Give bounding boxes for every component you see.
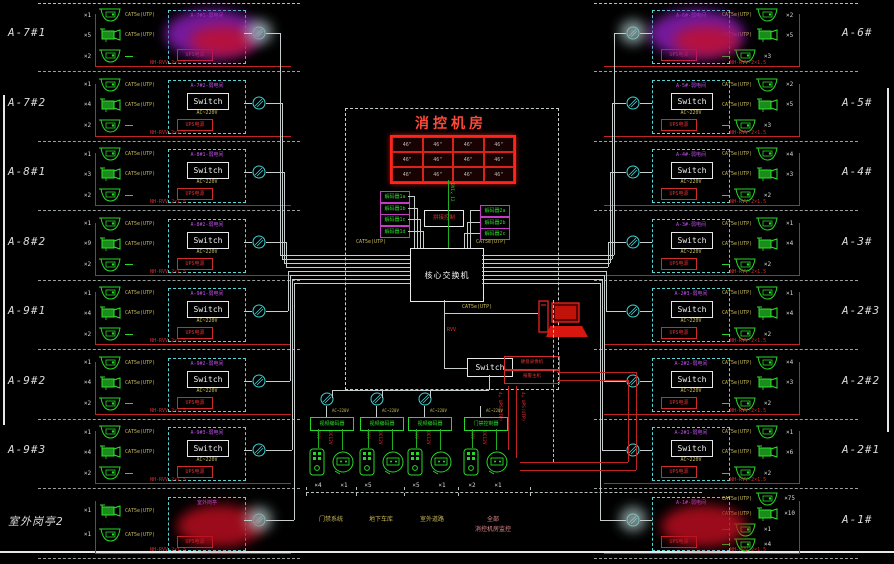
camera-count: ×1 [760,526,775,533]
camera-count: ×1 [80,81,95,88]
video-wall-cell: 46" [392,152,423,167]
blurred-watermark [246,20,272,44]
wire [284,172,285,263]
camera-item: ×4 CAT5e(UTP) [80,305,155,321]
blurred-watermark [620,507,646,531]
wire [640,103,652,104]
idf-room-title: A-7#2-弱电间 [169,82,245,89]
device-count: ×1 [488,482,508,489]
wire [266,103,282,104]
camera-count: ×2 [760,261,775,268]
group-label: 消控机房监控 [460,524,526,533]
dashed-line [356,487,357,496]
wire [266,311,288,312]
camera-cable-label: CAT5e(UTP) [125,151,155,157]
camera-stub [125,195,133,196]
box-camera-icon [97,27,123,43]
distribution-row: A-2#1 ×1 CAT5e(UTP) ×6 CAT5e(UTP) ×2 [574,421,894,490]
camera-item: ×3 CAT5e(UTP) [80,166,155,182]
power-label: AC~220V [187,179,227,185]
camera-item: ×2 [80,48,133,64]
wire [286,242,287,268]
network-node-icon [252,374,266,388]
wire [288,271,289,311]
power-feed-line [604,344,800,345]
group-label: 门禁系统 [306,514,356,523]
box-camera-icon [97,305,123,321]
camera-item: ×1 CAT5e(UTP) [80,424,155,440]
camera-count: ×4 [80,379,95,386]
camera-item: ×1 CAT5e(UTP) [80,77,155,93]
video-wall-cell: 46" [423,152,454,167]
access-switch: Switch [187,93,229,110]
power-feed-line [95,153,96,205]
camera-count: ×10 [782,510,797,517]
distribution-row: A-5# ×2 CAT5e(UTP) ×5 CAT5e(UTP) ×3 [574,74,894,143]
dome-camera-icon [754,424,780,440]
group-label: 地下车库 [356,514,406,523]
wire [332,390,489,391]
idf-room-title: A-1#-弱电间 [653,499,729,506]
dvr-box: 硬盘录像机 [504,356,560,370]
drop-line [318,429,319,448]
camera-cable-label: CAT5e(UTP) [125,241,155,247]
wire [482,271,606,272]
power-label: AC~220V [671,249,711,255]
camera-stub [125,264,133,265]
power-feed-line [799,14,800,66]
power-feed-line [95,292,96,344]
wire [640,172,652,173]
video-decoder-box: 解码器1c [380,214,410,226]
wire-label: DC12V [377,431,382,445]
camera-count: ×5 [80,32,95,39]
power-feed-line [95,483,291,484]
power-feed-line [604,275,800,276]
power-label: AC~220V [671,318,711,324]
wire [292,279,293,450]
camera-item: ×4 CAT5e(UTP) [722,305,797,321]
distribution-row: A-7#1 ×1 CAT5e(UTP) ×5 CAT5e(UTP) ×2 [0,4,320,73]
wire [244,520,252,521]
wire [290,275,291,381]
power-feed-line [95,344,291,345]
core-switch: 核心交换机 [410,248,484,302]
idf-room-box: A-9#2-弱电间 Switch AC~220V UPS电源 [168,358,246,412]
row-separator [38,488,300,489]
drop-line [368,429,369,448]
camera-count: ×1 [80,359,95,366]
wire [244,172,252,173]
dome-camera-icon [754,216,780,232]
distribution-row: A-3# ×1 CAT5e(UTP) ×4 CAT5e(UTP) ×2 [574,213,894,282]
box-camera-icon [97,97,123,113]
ups-box: UPS电源 [661,188,697,200]
power-feed-line [799,223,800,275]
dashed-line [306,492,702,493]
wire [489,375,490,390]
wire [482,275,604,276]
camera-item: ×1 CAT5e(UTP) [80,285,155,301]
power-label: AC~220V [671,457,711,463]
camera-item: ×5 CAT5e(UTP) [80,27,155,43]
idf-room-title: A-3#-弱电间 [653,221,729,228]
idf-room-title: A-2#3-弱电间 [653,290,729,297]
camera-item: ×1 CAT5e(UTP) [80,527,155,543]
cad-drawing-sheet: 消控机房 46"46"46"46"46"46"46"46"46"46"46"46… [0,0,894,564]
wire [482,283,600,284]
distribution-row: A-7#2 ×1 CAT5e(UTP) ×4 CAT5e(UTP) ×2 [0,74,320,143]
wire [600,283,601,520]
camera-count: ×1 [782,429,797,436]
wire [266,450,292,451]
dashed-line [553,300,554,462]
access-switch: Switch [187,371,229,388]
row-separator [594,280,858,281]
wire [408,219,420,220]
idf-room-box: A-9#3-弱电间 Switch AC~220V UPS电源 [168,427,246,481]
drop-line [440,429,441,450]
dome-camera-icon [97,257,123,273]
wire [408,231,423,232]
network-node-icon [252,304,266,318]
camera-item: ×4 CAT5e(UTP) [722,355,797,371]
power-feed-line [95,14,96,66]
access-switch: Switch [671,440,713,457]
group-label: 室外道路 [404,514,460,523]
camera-item: ×1 CAT5e(UTP) [80,146,155,162]
camera-cable-label: CAT5e(UTP) [125,360,155,366]
camera-item: ×1 CAT5e(UTP) [80,7,155,23]
wire [614,33,615,255]
camera-item: ×1 CAT5e(UTP) [722,424,797,440]
power-label: AC~220V [187,457,227,463]
camera-count: ×2 [80,400,95,407]
idf-room-title: A-9#3-弱电间 [169,429,245,436]
idf-room-box: A-8#2-弱电间 Switch AC~220V UPS电源 [168,219,246,273]
wire [482,279,602,280]
wire [482,255,614,256]
dome-camera-icon [97,285,123,301]
wire [444,368,467,369]
wire [382,390,383,398]
dashed-line [38,3,300,4]
power-feed-line [95,223,96,275]
camera-count: ×2 [760,192,775,199]
device-count: ×4 [308,482,328,489]
wire [470,210,480,211]
encoder-group: AC~220V 视频编码器 RVV DC12V ×4 ×1 门禁系统 [306,392,356,544]
device-count: ×1 [334,482,354,489]
video-decoder-box: 解码器2a [480,205,510,217]
camera-cable-label: CAT5e(UTP) [125,380,155,386]
dome-camera-icon [97,7,123,23]
wire [600,520,626,521]
power-feed-line [95,205,291,206]
wire [244,450,252,451]
camera-item: ×5 CAT5e(UTP) [722,97,797,113]
ups-box: UPS电源 [661,327,697,339]
camera-count: ×2 [760,470,775,477]
row-separator [594,210,858,211]
camera-item: ×3 CAT5e(UTP) [722,166,797,182]
box-camera-icon [97,166,123,182]
network-node-icon [252,96,266,110]
camera-count: ×1 [782,220,797,227]
wire [266,33,280,34]
camera-cable-label: CAT5e(UTP) [125,171,155,177]
wire [557,380,628,381]
camera-count: ×1 [80,531,95,538]
power-label: AC~220V [187,388,227,394]
wire [423,231,424,249]
wire [464,233,465,248]
wire [604,275,605,381]
blurred-watermark [661,505,746,547]
camera-cable-label: CAT5e(UTP) [125,102,155,108]
wire [610,172,626,173]
wire [520,470,636,471]
card-reader-icon [429,450,455,476]
wire [640,242,652,243]
row-separator [38,210,300,211]
encoder-box: 视频编码器 [408,417,452,431]
camera-item: ×1 CAT5e(UTP) [722,216,797,232]
camera-count: ×1 [80,12,95,19]
box-camera-icon [97,444,123,460]
wire-label: DC12V [327,431,332,445]
idf-room-box: A-9#1-弱电间 Switch AC~220V UPS电源 [168,288,246,342]
camera-cable-label: CAT5e(UTP) [125,12,155,18]
blurred-watermark [246,507,272,531]
camera-item: ×6 CAT5e(UTP) [722,444,797,460]
camera-cable-label: CAT5e(UTP) [125,310,155,316]
drop-line [424,406,425,417]
idf-room-box: A-5#-弱电间 Switch AC~220V UPS电源 [652,80,730,134]
camera-count: ×2 [760,400,775,407]
power-label: AC~220V [187,249,227,255]
camera-count: ×3 [782,379,797,386]
wire [628,380,629,462]
cat5-label: CAT5e(UTP) [356,239,386,245]
video-decoder-box: 解码器2c [480,228,510,240]
camera-item: ×3 CAT5e(UTP) [722,375,797,391]
wire [280,33,281,255]
box-camera-icon [754,27,780,43]
network-node-icon [626,96,640,110]
idf-room-title: A-2#1-弱电间 [653,429,729,436]
box-camera-icon [754,444,780,460]
box-camera-icon [754,375,780,391]
wire [408,208,417,209]
wire [294,283,295,520]
camera-stub [125,403,133,404]
power-feed-line [95,66,291,67]
ups-box: UPS电源 [661,119,697,131]
ups-box: UPS电源 [661,466,697,478]
row-separator [38,71,300,72]
dome-camera-icon [97,396,123,412]
camera-item: ×2 [80,326,133,342]
idf-room-title: 室外岗亭 [169,499,245,506]
idf-room-box: A-3#-弱电间 Switch AC~220V UPS电源 [652,219,730,273]
camera-stub [125,473,133,474]
wire [612,103,613,260]
access-switch: Switch [671,371,713,388]
network-node-icon [252,443,266,457]
intercom-panel-icon [308,448,326,478]
wire [606,271,607,311]
wire [508,386,509,450]
encoder-box: 视频编码器 [360,417,404,431]
wire [244,103,252,104]
intercom-panel-icon [406,448,424,478]
blurred-watermark [620,20,646,44]
idf-room-box: A-4#-弱电间 Switch AC~220V UPS电源 [652,149,730,203]
drop-line [472,429,473,448]
dashed-line [404,487,405,496]
wire [640,520,652,521]
power-feed-line [604,483,800,484]
row-separator [38,349,300,350]
video-decoder-box: 解码器2b [480,217,510,229]
camera-item: ×2 [80,118,133,134]
wire-label: DC12V [481,431,486,445]
camera-item: ×2 [80,257,133,273]
camera-item: ×4 CAT5e(UTP) [80,444,155,460]
wire [602,279,603,450]
power-label: AC~220V [382,408,399,413]
camera-count: ×3 [782,171,797,178]
video-wall: 46"46"46"46"46"46"46"46"46"46"46"46" [390,135,516,184]
camera-count: ×2 [80,470,95,477]
power-label: AC~220V [332,408,349,413]
camera-stub [125,334,133,335]
distribution-row: A-9#1 ×1 CAT5e(UTP) ×4 CAT5e(UTP) ×2 [0,282,320,351]
access-switch: Switch [671,232,713,249]
camera-item: ×1 CAT5e(UTP) [80,216,155,232]
power-feed-line [95,275,291,276]
wire [266,242,286,243]
camera-item: ×1 CAT5e(UTP) [80,503,155,519]
encoder-box: 门禁控制器 [464,417,508,431]
cat5-label: CAT5e(UTP) [462,304,492,310]
video-wall-cell: 46" [484,152,515,167]
camera-item: ×2 CAT5e(UTP) [722,77,797,93]
box-camera-icon [97,503,123,519]
wire [610,172,611,263]
wire [640,450,652,451]
access-switch: Switch [187,301,229,318]
camera-count: ×5 [782,101,797,108]
drop-line [326,406,327,417]
camera-count: ×2 [80,261,95,268]
wire [282,259,410,260]
camera-cable-label: CAT5e(UTP) [125,508,155,514]
alarm-host-box: 报警主机 [504,370,560,384]
network-node-icon [626,165,640,179]
row-separator [594,141,858,142]
distribution-row: A-1# ×75 CAT5e(UTP) ×10 CAT5e(UTP) ×1 [574,491,894,560]
wire [284,263,410,264]
wire [282,103,283,260]
camera-count: ×2 [80,53,95,60]
wire [467,222,480,223]
wire [482,263,610,264]
access-switch: Switch [187,162,229,179]
camera-count: ×2 [782,12,797,19]
camera-item: ×4 CAT5e(UTP) [80,375,155,391]
wire [430,390,431,398]
distribution-row: A-8#1 ×1 CAT5e(UTP) ×3 CAT5e(UTP) ×2 [0,143,320,212]
power-label: AC~220V [486,408,503,413]
camera-cable-label: CAT5e(UTP) [125,221,155,227]
access-switch: Switch [187,440,229,457]
wire [244,381,252,382]
network-node-icon [252,235,266,249]
riser-cable-label: RVV [447,327,456,333]
idf-room-title: A-2#2-弱电间 [653,360,729,367]
camera-count: ×4 [80,310,95,317]
group-label: 全部 [460,514,526,523]
wire [244,311,252,312]
camera-count: ×1 [782,290,797,297]
camera-stub [125,125,133,126]
idf-room-box: A-2#2-弱电间 Switch AC~220V UPS电源 [652,358,730,412]
power-label: AC~220V [187,110,227,116]
power-label: AC~220V [430,408,447,413]
wire [467,222,468,249]
video-wall-cell: 46" [453,167,484,182]
card-reader-icon [331,450,357,476]
camera-item: ×1 CAT5e(UTP) [80,355,155,371]
camera-item: ×1 CAT5e(UTP) [722,285,797,301]
dashed-line [458,487,459,496]
row-separator [38,280,300,281]
idf-room-box: A-8#1-弱电间 Switch AC~220V UPS电源 [168,149,246,203]
wire [266,172,284,173]
dome-camera-icon [97,48,123,64]
box-camera-icon [754,305,780,321]
camera-count: ×2 [760,331,775,338]
wire [614,33,626,34]
wire [244,242,252,243]
wire [417,208,418,249]
camera-count: ×3 [80,171,95,178]
network-node-icon [626,235,640,249]
camera-item: ×2 [80,396,133,412]
access-switch: Switch [187,232,229,249]
encoder-group: AC~220V 视频编码器 RVV DC12V ×5 ×1 室外道路 [404,392,460,544]
idf-room-title: A-4#-弱电间 [653,151,729,158]
device-count: ×5 [406,482,426,489]
power-label: AC~220V [671,110,711,116]
wire [414,196,415,248]
power-label: AC~220V [671,179,711,185]
camera-count: ×6 [782,449,797,456]
row-separator [38,141,300,142]
dome-camera-icon [754,355,780,371]
wire [332,390,333,398]
distribution-row: A-9#2 ×1 CAT5e(UTP) ×4 CAT5e(UTP) ×2 [0,352,320,421]
wire [608,242,626,243]
wire [606,311,626,312]
distribution-row: 室外岗亭2 ×1 CAT5e(UTP) ×1 CAT5e(UTP) 室外岗亭 S… [0,491,320,560]
camera-count: ×1 [80,507,95,514]
video-decoder-box: 解码器1a [380,191,410,203]
encoder-group: AC~220V 视频编码器 RVV DC12V ×5 地下车库 [356,392,406,544]
camera-cable-label: CAT5e(UTP) [125,82,155,88]
